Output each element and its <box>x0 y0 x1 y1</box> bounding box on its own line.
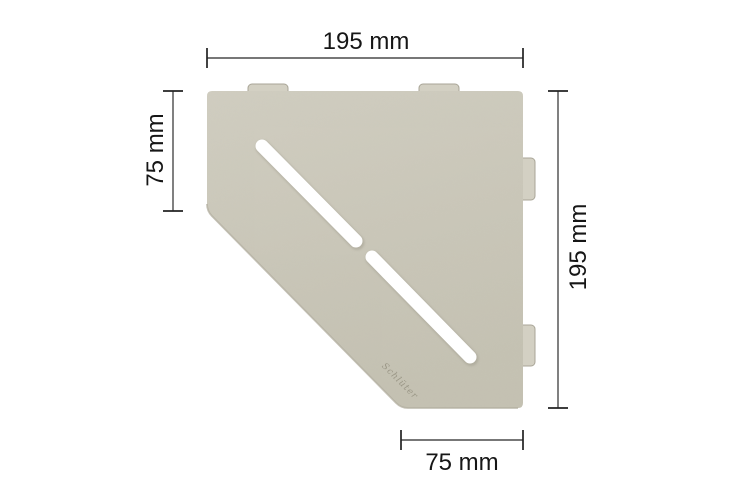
shelf-plate-group: Schlüter <box>200 84 540 424</box>
dimension-top: 195 mm <box>207 28 523 68</box>
diagram-canvas: Schlüter 195 mm 75 mm <box>0 0 733 497</box>
dimension-left-label: 75 mm <box>142 113 169 186</box>
shelf-dimension-diagram: Schlüter 195 mm 75 mm <box>0 0 733 497</box>
dimension-left: 75 mm <box>142 91 183 211</box>
dimension-bottom: 75 mm <box>401 430 523 476</box>
dimension-right: 195 mm <box>548 91 592 408</box>
dimension-top-label: 195 mm <box>323 28 410 55</box>
dimension-bottom-label: 75 mm <box>425 449 498 476</box>
dimension-right-label: 195 mm <box>565 204 592 291</box>
